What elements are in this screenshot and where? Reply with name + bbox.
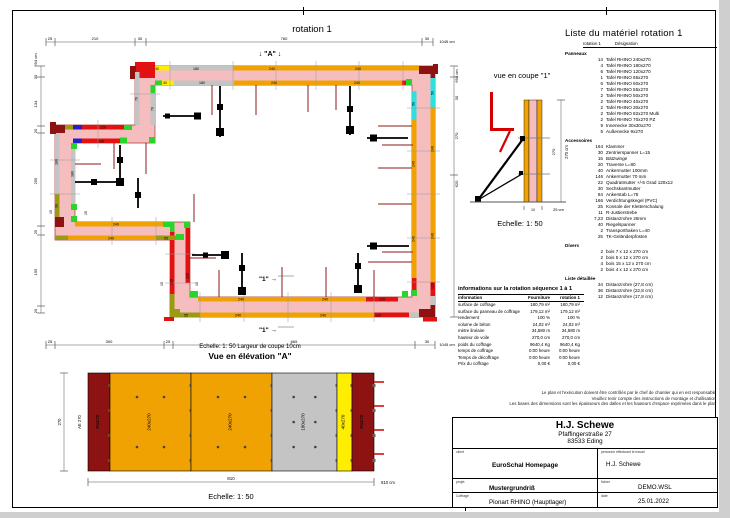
disclaimer-line: Les bases des dimensions sont les épaiss… [438,401,716,407]
plan-label: 25 [33,229,38,234]
plan-label: 240 [235,313,241,317]
plan-label: 240 [412,161,416,167]
elev-bottom-dim: 810 [227,476,235,481]
info-rotation1: 100 % [550,315,580,322]
anchor-dot [217,396,220,399]
info-fourniture: 0,00 € [520,361,550,368]
plan-label: 120 [186,273,190,279]
info-label: Prix du coffrage [458,361,520,368]
client-value: EuroSchal Homepage [453,449,597,469]
plan-label: 240 [354,81,360,85]
anchor-dot [163,446,166,449]
plan-label: 120 [375,313,381,317]
plan-label: 1045 cm [439,342,455,347]
anchor-dot [217,446,220,449]
plan-label: 30 [55,204,59,208]
info-label: poids du coffrage [458,342,520,349]
push-pull-braces [75,86,409,295]
date-value: 25.01.2022 [598,493,717,505]
info-rotation1: 9640,4 Kg [550,342,580,349]
anchor-dot [292,446,295,449]
info-row: Prix du coffrage0,00 €0,00 € [458,361,584,368]
info-label: volume de béton [458,322,520,329]
date-label: date [601,494,608,498]
date-cell: date 25.01.2022 [598,493,717,506]
plan-label: 30 [454,95,459,100]
info-rotation1: 0,00 € [550,361,580,368]
anchor-dot [136,396,139,399]
anchor-dot [163,396,166,399]
anchor-dot [314,396,317,399]
coupe-wall [524,100,542,202]
plan-label: "1" → [259,327,277,334]
plan-label: 40 [155,67,159,71]
material-list-header: rotation 1 Désignation [583,41,717,48]
anchor-dot [244,446,247,449]
climbing-console [490,92,514,152]
coupe-title: vue en coupe "1" [494,71,551,80]
info-rotation1: 180,79 m² [550,302,580,309]
company-header: H.J. Schewe Pfaffingerstraße 27 83533 Ed… [453,418,717,449]
file-label: fichier [601,480,610,484]
info-label: Temps de décoffrage [458,355,520,362]
elevation-panel-label: 240x270 [147,413,152,431]
plan-label: 240 [113,223,119,227]
plan-label: 30 [425,36,430,41]
plan-label: 120 [98,139,104,143]
material-qty: 2 [565,267,603,273]
section-view: vue en coupe "1" 270 270 cm 10 25 c [462,60,578,236]
info-label: temps de coffrage [458,348,520,355]
elevation-panel-label: 40x270 [341,414,346,429]
coupe-dim-bottom: 25 cm [553,207,565,212]
material-designation: Außenecke 9x270 [606,129,643,135]
info-fourniture: 0:00 heure [520,355,550,362]
elevation-title: Vue en élévation "A" [120,351,380,361]
material-col-designation: Désignation [615,41,638,46]
worker-cell: personne effectuant le travail H.J. Sche… [598,449,717,479]
joint-marks [50,61,440,322]
plan-label: 15 [84,211,88,215]
formwork-label: Coffrage [456,494,469,498]
file-cell: fichier DEMO.WSL [598,479,717,493]
client-label: client [456,450,464,454]
project-cell: projet Mustergrundriß [453,479,597,493]
plan-label: 240 [108,236,114,240]
plan-label: 70 [151,107,155,111]
info-rotation1: 34,580 m [550,328,580,335]
wall-ring [55,66,435,317]
info-fourniture: 0:00 heure [520,348,550,355]
info-fourniture: 34,580 m [520,328,550,335]
plan-label: 240 [431,233,435,239]
plan-label: 120 [100,125,106,129]
elev-left-dim: 270 [57,418,62,426]
plan-label: 1045 cm [439,39,455,44]
drawing-sheet: rotation 1↓ "A" ↓"1" →"1" →2521030760301… [0,0,719,512]
plan-label: 240 [269,67,275,71]
info-rotation1: 0:00 heure [550,355,580,362]
material-col-rotation: rotation 1 [583,41,601,46]
plan-label: 55 [164,236,168,240]
info-row: mètre linéaire34,580 m34,580 m [458,328,584,335]
plan-label: ↓ "A" ↓ [259,51,282,58]
fold-mark [606,7,607,15]
info-label: information [458,295,520,302]
clamp-mark [373,434,376,437]
plan-label: 180 [71,171,75,177]
plan-label: 195 [33,268,38,275]
elev-scale: Echelle: 1: 50 [208,492,253,501]
anchor-dot [292,396,295,399]
elev-corner-label: AE 270 [77,414,82,428]
elevation-view: 70x270240x270240x270180x27040x27070x270 … [50,362,402,510]
plan-label: 25 [48,36,53,41]
worker-label: personne effectuant le travail [601,450,644,454]
elevation-panel-label: 70x270 [95,414,100,429]
info-fourniture: 9640,4 Kg [520,342,550,349]
plan-label: 240 [412,236,416,242]
clamp-mark [373,384,376,387]
plan-label: 70 [135,97,139,101]
plan-label: 30 [138,36,143,41]
plan-label: 620 [454,180,459,187]
plan-label: 180 [199,81,205,85]
company-name: H.J. Schewe [453,418,717,431]
plan-label: rotation 1 [292,24,332,35]
info-table: informations sur la rotation séquence 1 … [458,286,584,368]
plan-scale-note: Echelle: 1: 50 Largeur de coupe 10cm [120,344,380,350]
plan-label: 120 [379,298,385,302]
material-designation: Distanzrohre (17,8 cm) [606,294,653,300]
material-qty: 25 [565,234,603,240]
info-row: rendement100 %100 % [458,315,584,322]
material-designation: TK-Geländerpfosten [606,234,647,240]
material-list-title: Liste du matériel rotation 1 [565,28,717,39]
plan-label: 50 [431,91,435,95]
anchor-dot [292,421,295,424]
client-cell: client EuroSchal Homepage [453,449,597,479]
info-rotation1: 179,12 m² [550,309,580,316]
info-rotation1: 0:00 heure [550,348,580,355]
plan-label: 694 cm [33,53,38,67]
plan-label: 20 [33,128,38,133]
plan-label: 120 [170,279,174,285]
coupe-braces [475,136,525,202]
material-row: 25TK-Geländerpfosten [565,234,717,240]
anchor-dot [314,421,317,424]
clamp-mark [373,409,376,412]
plan-label: 50 [412,102,416,106]
info-rotation1: 270,0 cm [550,335,580,342]
plan-label: "1" → [259,276,277,283]
material-row: 12Distanzrohre (17,8 cm) [565,294,717,300]
material-qty: 5 [565,129,603,135]
info-label: mètre linéaire [458,328,520,335]
plan-label: 240 [238,298,244,302]
plan-label: 255 [33,177,38,184]
plan-label: 240 [431,146,435,152]
info-fourniture: Fourniture [520,295,550,302]
coupe-dim-core: 10 [531,208,535,212]
plan-label: 134 [33,100,38,107]
info-label: hauteur de voile [458,335,520,342]
plan-label: 270 [454,132,459,139]
formwork-value: Pionart RHINO (Hauptlager) [453,493,597,506]
elev-total-dim: 810 cm [381,480,395,485]
plan-label: 240 [271,81,277,85]
plan-label: 40 [163,81,167,85]
elevation-panel-label: 180x270 [301,413,306,431]
info-fourniture: 270,0 cm [520,335,550,342]
plan-label: 15 [160,282,164,286]
info-row: surface du panneau de coffrage179,12 m²1… [458,309,584,316]
clamp-mark [373,459,376,462]
info-label: surface du panneau de coffrage [458,309,520,316]
disclaimer-text: Le plan et l'exécution doivent être cont… [438,390,716,407]
plan-label: 55 [184,313,188,317]
plan-label: 180 [193,67,199,71]
elevation-panel-label: 240x270 [228,413,233,431]
info-row: hauteur de voile270,0 cm270,0 cm [458,335,584,342]
info-fourniture: 179,12 m² [520,309,550,316]
plan-label: 180 [55,159,59,165]
project-label: projet [456,480,464,484]
coupe-dim-inner: 270 [551,148,556,155]
material-row: 2bois 4 x 12 x 270 cm [565,267,717,273]
info-fourniture: 100 % [520,315,550,322]
plan-label: 694 cm [454,69,459,83]
material-designation: bois 4 x 12 x 270 cm [606,267,648,273]
info-row: poids du coffrage9640,4 Kg9640,4 Kg [458,342,584,349]
plan-label: 240 [355,67,361,71]
project-value: Mustergrundriß [453,479,597,492]
info-row: Temps de décoffrage0:00 heure0:00 heure [458,355,584,362]
plan-view: rotation 1↓ "A" ↓"1" →"1" →2521030760301… [16,14,468,354]
company-city: 83533 Eding [453,438,717,445]
info-header-row: informationFourniturerotation 1 [458,295,584,303]
plan-label: 240 [320,313,326,317]
info-table-title: informations sur la rotation séquence 1 … [458,286,584,295]
info-row: surface de coffrage180,79 m²180,79 m² [458,302,584,309]
info-row: volume de béton24,02 m³24,02 m³ [458,322,584,329]
plan-label: 760 [281,36,288,41]
anchor-dot [136,446,139,449]
plan-label: 240 [322,298,328,302]
plan-label: 15 [49,210,53,214]
info-fourniture: 180,79 m² [520,302,550,309]
elev-anchor-ticks [374,382,384,454]
material-row: 5Außenecke 9x270 [565,129,717,135]
plan-label: 20 [33,308,38,313]
formwork-cell: Coffrage Pionart RHINO (Hauptlager) [453,493,597,506]
company-street: Pfaffingerstraße 27 [453,431,717,438]
plan-label: 30 [425,339,430,344]
anchor-dot [244,396,247,399]
info-row: temps de coffrage0:00 heure0:00 heure [458,348,584,355]
elevation-panel-label: 70x270 [359,414,364,429]
anchor-dot [314,446,317,449]
plan-label: 210 [92,36,99,41]
plan-label: 15 [195,282,199,286]
plan-label: 120 [431,283,435,289]
coupe-scale: Echelle: 1: 50 [497,219,542,228]
plan-label: 300 [106,339,113,344]
info-rotation1: 24,02 m³ [550,322,580,329]
info-fourniture: 24,02 m³ [520,322,550,329]
plan-label: 25 [48,339,53,344]
plan-label: 30 [33,74,38,79]
material-list: Liste du matériel rotation 1 rotation 1 … [565,28,717,300]
info-label: surface de coffrage [458,302,520,309]
info-label: rendement [458,315,520,322]
file-value: DEMO.WSL [598,479,717,491]
title-block: H.J. Schewe Pfaffingerstraße 27 83533 Ed… [452,417,718,508]
info-rotation1: rotation 1 [550,295,580,302]
